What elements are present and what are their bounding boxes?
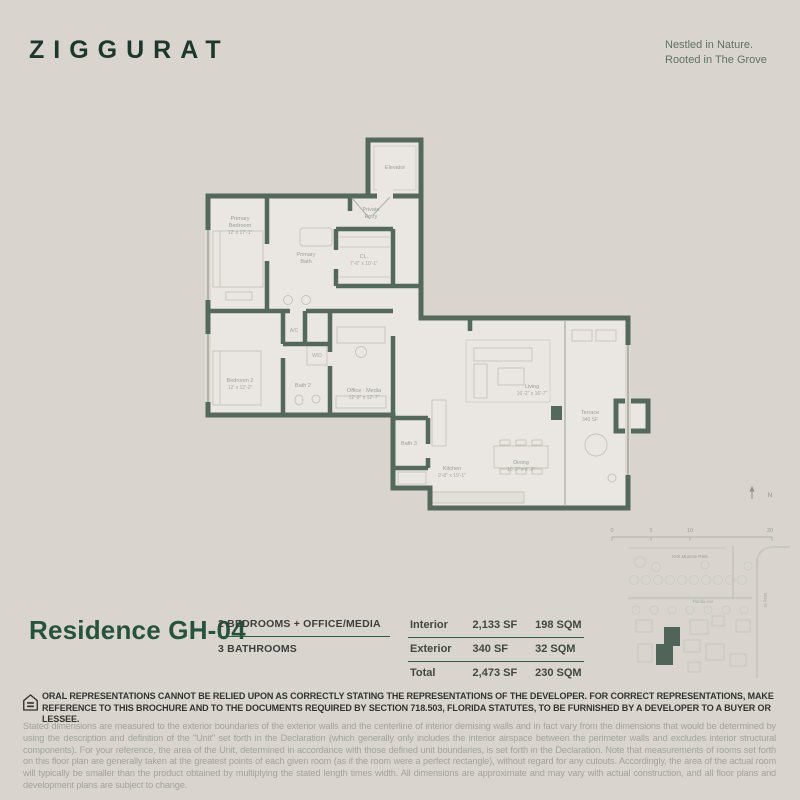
label-primary-bedroom-2: Bedroom — [229, 223, 252, 229]
label-private-entry-1: Private — [362, 207, 379, 213]
row-label: Exterior — [410, 643, 473, 655]
label-terrace: Terrace — [581, 410, 599, 416]
label-bedroom2: Bedroom 2 — [227, 378, 254, 384]
table-row-interior: Interior 2,133 SF 198 SQM — [408, 614, 584, 638]
label-wd: W/D — [312, 353, 322, 359]
label-primary-bath-1: Primary — [297, 252, 316, 258]
label-private-entry-2: Entry — [365, 214, 378, 220]
site-map: N 0 5 10 20 — [600, 480, 800, 685]
dims-kitchen: 9'-8" x 19'-1" — [438, 473, 466, 479]
legal-disclaimer-fine: Stated dimensions are measured to the ex… — [23, 721, 776, 792]
floor-plan: Elevator Private Entry Primary Bedroom 1… — [173, 106, 667, 522]
dims-office: 12'-9" x 12'-7" — [349, 395, 380, 401]
label-ac: A/C — [290, 328, 299, 334]
ziggurat-logo: ZIGGURAT — [29, 36, 230, 65]
tagline-line-1: Nestled in Nature. — [665, 38, 767, 53]
street-label-vertical: Mary St — [763, 593, 768, 608]
table-row-exterior: Exterior 340 SF 32 SQM — [408, 638, 584, 662]
row-sf: 2,473 SF — [473, 667, 536, 679]
north-arrow-icon: N — [750, 486, 773, 499]
label-primary-bath-2: Bath — [300, 259, 311, 265]
dims-dining: 10'-2" x 8'-9" — [507, 467, 535, 473]
scale-bar: 0 5 10 20 — [610, 528, 773, 541]
label-dining: Dining — [513, 460, 529, 466]
brochure-page: ZIGGURAT Nestled in Nature. Rooted in Th… — [0, 0, 800, 800]
street-label-horizontal: Florida Ave — [693, 599, 715, 604]
row-label: Total — [410, 667, 473, 679]
tagline-line-2: Rooted in The Grove — [665, 53, 767, 68]
dims-bedroom2: 12' x 12'-2" — [228, 385, 253, 391]
row-sqm: 198 SQM — [535, 619, 582, 631]
label-living: Living — [525, 384, 539, 390]
building-footprint — [656, 627, 680, 665]
dims-living: 16'-2" x 16'-7" — [517, 391, 548, 397]
row-label: Interior — [410, 619, 473, 631]
dims-terrace: 340 SF — [582, 417, 598, 423]
spec-bedrooms: 2 BEDROOMS + OFFICE/MEDIA — [218, 618, 390, 637]
tagline: Nestled in Nature. Rooted in The Grove — [665, 38, 767, 68]
residence-title: Residence GH-04 — [29, 615, 246, 646]
scale-0: 0 — [610, 528, 613, 534]
row-sqm: 32 SQM — [535, 643, 582, 655]
label-elevator: Elevator — [385, 165, 405, 171]
spec-bathrooms: 3 BATHROOMS — [218, 637, 390, 655]
row-sf: 2,133 SF — [473, 619, 536, 631]
equal-housing-icon — [23, 694, 38, 711]
scale-20: 20 — [767, 528, 773, 534]
terrace-planter — [616, 401, 648, 431]
dims-primary-bedroom: 12' x 17'-1" — [228, 230, 253, 236]
area-table: Interior 2,133 SF 198 SQM Exterior 340 S… — [408, 614, 584, 685]
label-office: Office · Media — [347, 388, 382, 394]
label-bath3: Bath 3 — [401, 441, 417, 447]
dims-closet: 7'-6" x 10'-1" — [350, 261, 378, 267]
label-closet: CL. — [360, 254, 369, 260]
house-blocks — [636, 616, 750, 672]
row-sf: 340 SF — [473, 643, 536, 655]
north-label: N — [768, 492, 773, 499]
table-row-total: Total 2,473 SF 230 SQM — [408, 662, 584, 685]
label-kitchen: Kitchen — [443, 466, 461, 472]
scale-5: 5 — [649, 528, 652, 534]
structural-column — [551, 406, 562, 420]
scale-10: 10 — [687, 528, 693, 534]
park-label: Kirk Munroe Park — [672, 554, 708, 559]
residence-specs: 2 BEDROOMS + OFFICE/MEDIA 3 BATHROOMS — [218, 618, 390, 655]
label-primary-bedroom-1: Primary — [231, 216, 250, 222]
label-bath2: Bath 2 — [295, 383, 311, 389]
row-sqm: 230 SQM — [535, 667, 582, 679]
